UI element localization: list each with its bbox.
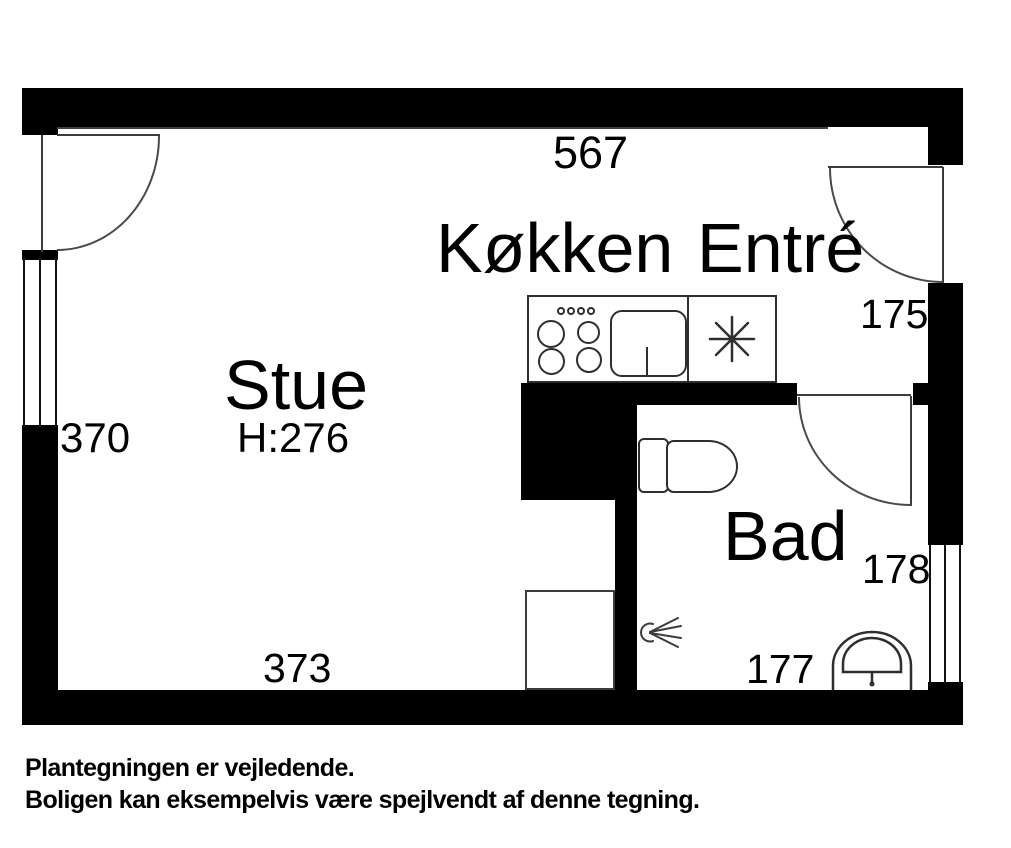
wall-corner-top-left	[22, 88, 58, 135]
room-label-koekken: Køkken	[436, 213, 673, 283]
wall-left-segment-lower	[22, 425, 58, 725]
wall-top	[22, 88, 963, 127]
toilet-bowl	[666, 440, 738, 493]
stove-knob-icon	[567, 307, 575, 315]
stove-knob-icon	[587, 307, 595, 315]
wall-right-segment-mid	[928, 283, 963, 545]
stove-knob-icon	[577, 307, 585, 315]
toilet-tank	[638, 438, 669, 493]
dimension-top-width: 567	[553, 130, 628, 175]
door-bad-swing-arc	[798, 397, 911, 506]
wall-corner-top-right	[928, 88, 963, 165]
wall-bottom	[22, 690, 963, 725]
disclaimer-line-2: Boligen kan eksempelvis være spejlvendt …	[25, 784, 699, 816]
stove-burner-icon	[537, 320, 565, 348]
dimension-left-height: 370	[60, 417, 130, 459]
disclaimer-line-1: Plantegningen er vejledende.	[25, 752, 699, 784]
cabinet	[525, 590, 615, 690]
floor-plan: 567 Køkken Entré 175 Stue H:276 370 Bad …	[0, 0, 1011, 848]
dimension-bad-width: 177	[746, 649, 814, 690]
kitchen-counter-divider	[687, 296, 689, 382]
duct-shaft-block	[521, 383, 637, 500]
door-stue-swing-arc	[57, 136, 160, 251]
stove-knob-icon	[557, 307, 565, 315]
dimension-entre-width: 175	[860, 294, 928, 335]
disclaimer-note: Plantegningen er vejledende. Boligen kan…	[25, 752, 699, 816]
dimension-bottom-width: 373	[263, 648, 331, 689]
wall-bad-top-right-stub	[913, 383, 937, 405]
room-label-entre: Entré	[697, 213, 864, 283]
fridge-asterisk-icon	[707, 314, 757, 364]
door-bad-opening-line	[797, 394, 911, 396]
wall-bad-top-left-segment	[637, 383, 797, 405]
washbasin-icon	[830, 626, 914, 690]
kitchen-sink-icon	[610, 310, 687, 377]
wall-top-inner-face-line	[57, 127, 828, 129]
dimension-bad-height: 178	[862, 549, 930, 590]
stove-burner-icon	[576, 347, 602, 373]
stove-burner-icon	[577, 321, 600, 344]
room-label-bad: Bad	[723, 501, 848, 571]
room-label-stue: Stue	[224, 350, 368, 420]
door-stue-closed-leaf	[41, 135, 43, 252]
stove-burner-icon	[538, 348, 565, 375]
kitchen-sink-drain-line	[646, 347, 648, 376]
shower-spray-icon	[640, 612, 686, 654]
ceiling-height-label: H:276	[237, 417, 349, 459]
wall-bad-left	[615, 500, 637, 692]
